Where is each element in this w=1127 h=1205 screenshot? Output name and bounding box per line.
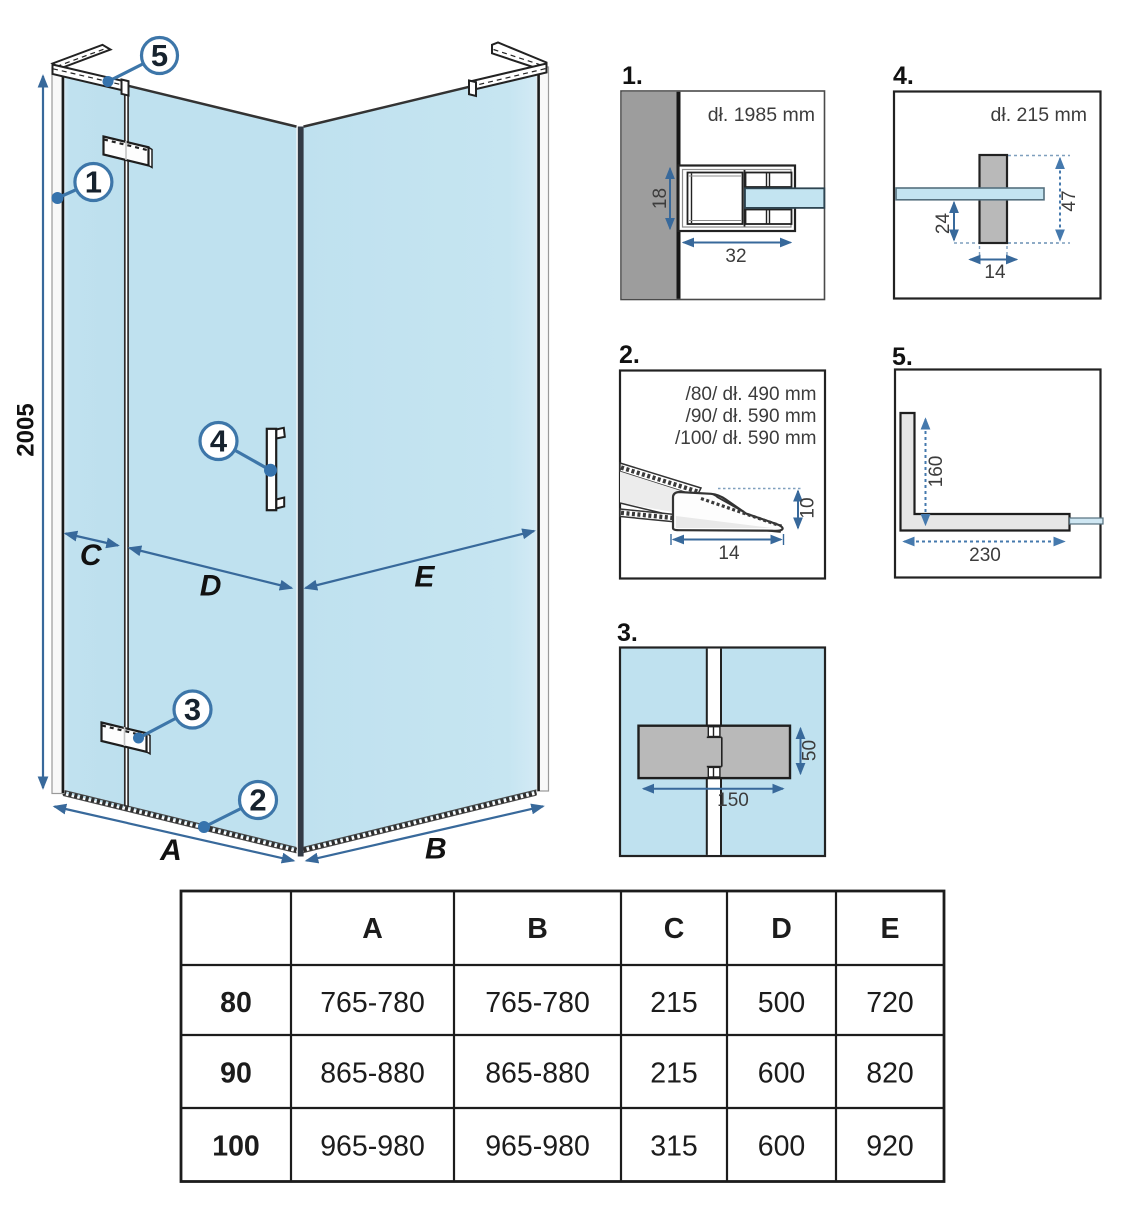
svg-text:B: B — [527, 913, 548, 945]
svg-text:dł. 215 mm: dł. 215 mm — [991, 104, 1087, 126]
svg-text:18: 18 — [650, 188, 671, 209]
svg-text:3.: 3. — [617, 619, 638, 647]
svg-text:A: A — [159, 834, 182, 867]
svg-text:1: 1 — [85, 165, 102, 200]
svg-text:965-980: 965-980 — [485, 1131, 590, 1163]
svg-text:47: 47 — [1059, 190, 1080, 211]
svg-text:50: 50 — [800, 740, 821, 761]
svg-text:2.: 2. — [619, 341, 640, 369]
svg-text:820: 820 — [866, 1058, 914, 1090]
svg-text:765-780: 765-780 — [485, 987, 590, 1019]
svg-text:500: 500 — [758, 987, 806, 1019]
svg-text:5: 5 — [151, 38, 168, 73]
svg-text:4: 4 — [210, 424, 228, 459]
svg-text:865-880: 865-880 — [485, 1058, 590, 1090]
svg-text:/80/ dł. 490 mm: /80/ dł. 490 mm — [686, 384, 817, 405]
svg-text:5.: 5. — [892, 343, 913, 371]
svg-text:765-780: 765-780 — [320, 987, 425, 1019]
svg-text:dł. 1985 mm: dł. 1985 mm — [708, 104, 815, 126]
svg-text:/90/ dł. 590 mm: /90/ dł. 590 mm — [686, 406, 817, 427]
svg-text:C: C — [664, 913, 685, 945]
svg-text:10: 10 — [798, 497, 819, 518]
svg-text:2005: 2005 — [12, 403, 39, 456]
svg-text:80: 80 — [220, 987, 252, 1019]
svg-text:215: 215 — [650, 987, 698, 1019]
svg-text:/100/ dł. 590 mm: /100/ dł. 590 mm — [675, 428, 817, 449]
svg-text:14: 14 — [718, 543, 740, 564]
svg-text:215: 215 — [650, 1058, 698, 1090]
svg-text:600: 600 — [758, 1131, 806, 1163]
svg-text:C: C — [80, 539, 103, 572]
svg-text:720: 720 — [866, 987, 914, 1019]
svg-text:14: 14 — [984, 262, 1006, 283]
svg-text:865-880: 865-880 — [320, 1058, 425, 1090]
svg-text:160: 160 — [926, 456, 947, 488]
svg-text:100: 100 — [212, 1131, 260, 1163]
svg-text:965-980: 965-980 — [320, 1131, 425, 1163]
svg-text:600: 600 — [758, 1058, 806, 1090]
svg-text:920: 920 — [866, 1131, 914, 1163]
svg-text:D: D — [200, 570, 222, 603]
svg-text:B: B — [425, 833, 447, 866]
svg-text:E: E — [880, 913, 899, 945]
svg-text:1.: 1. — [622, 62, 643, 90]
svg-text:90: 90 — [220, 1058, 252, 1090]
svg-text:315: 315 — [650, 1131, 698, 1163]
svg-text:230: 230 — [969, 545, 1001, 566]
svg-text:3: 3 — [184, 692, 201, 727]
svg-text:150: 150 — [717, 790, 749, 811]
svg-text:D: D — [771, 913, 792, 945]
svg-text:4.: 4. — [893, 62, 914, 90]
svg-text:E: E — [414, 561, 435, 594]
svg-text:2: 2 — [249, 783, 266, 818]
svg-text:24: 24 — [933, 213, 954, 235]
svg-text:32: 32 — [725, 246, 746, 267]
svg-text:A: A — [362, 913, 383, 945]
